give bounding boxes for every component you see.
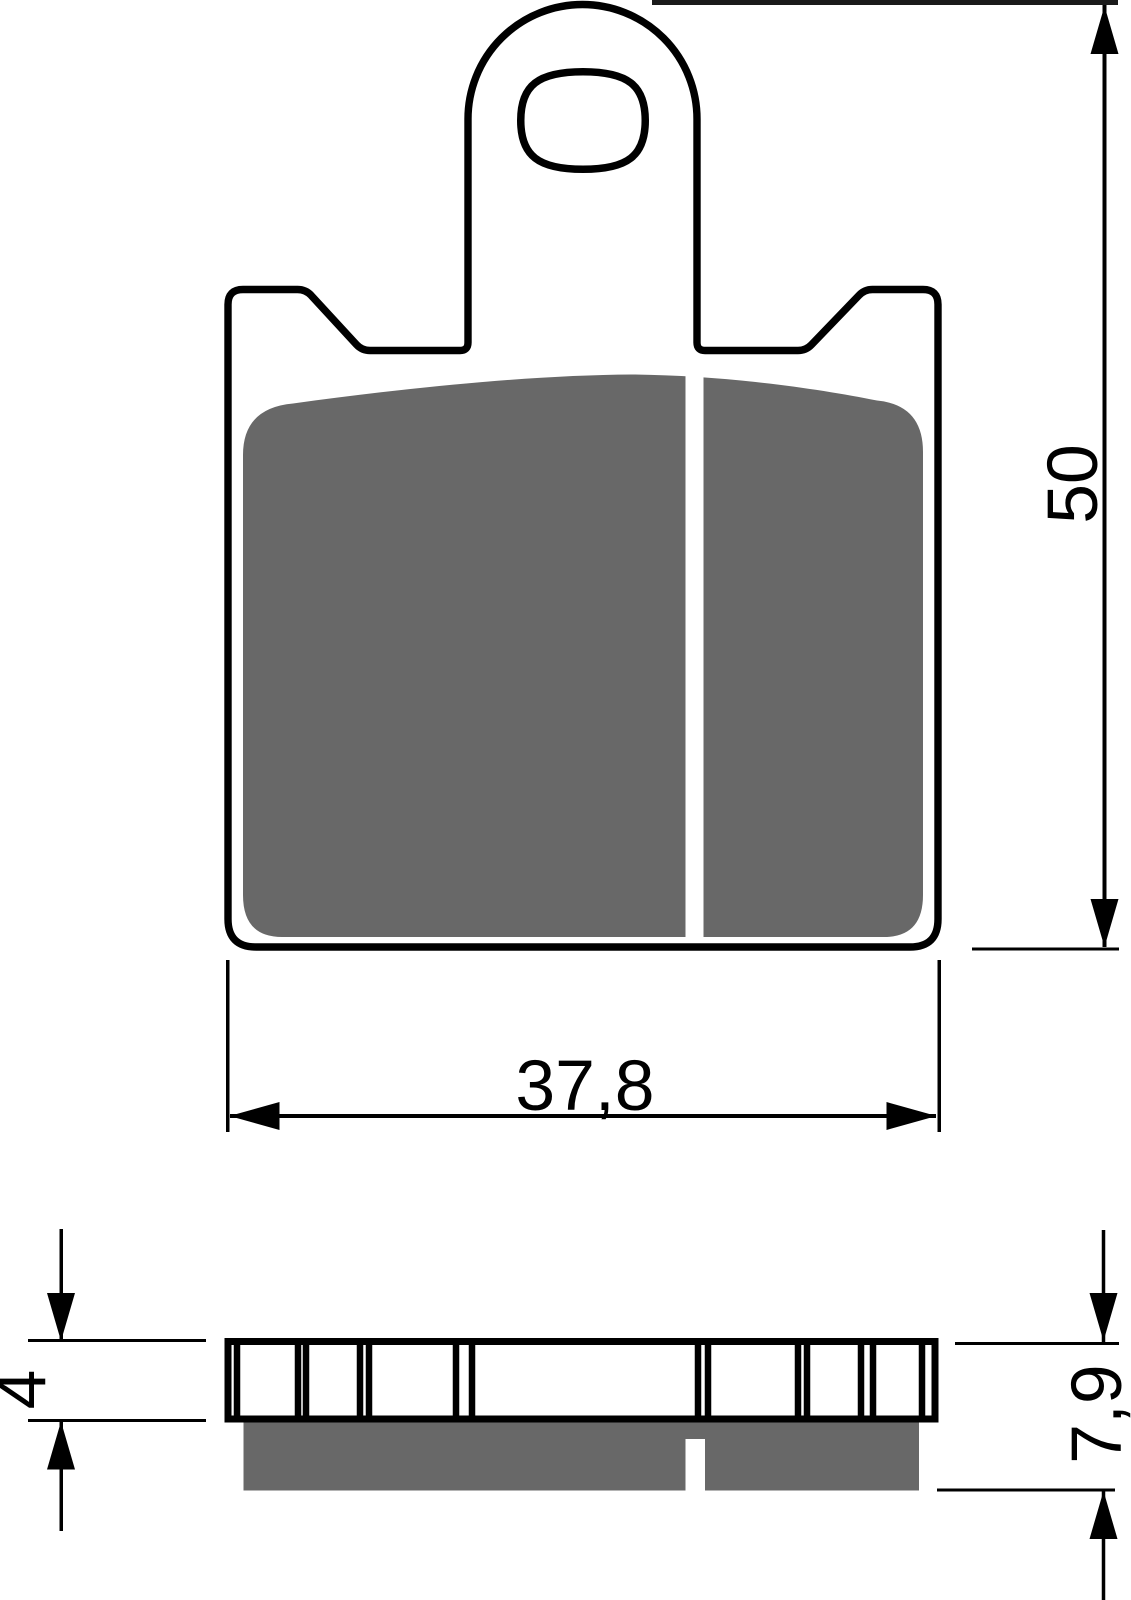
- svg-text:4: 4: [0, 1370, 61, 1410]
- svg-text:7,9: 7,9: [1057, 1364, 1131, 1463]
- svg-text:37,8: 37,8: [515, 1046, 654, 1126]
- svg-text:50: 50: [1033, 444, 1113, 524]
